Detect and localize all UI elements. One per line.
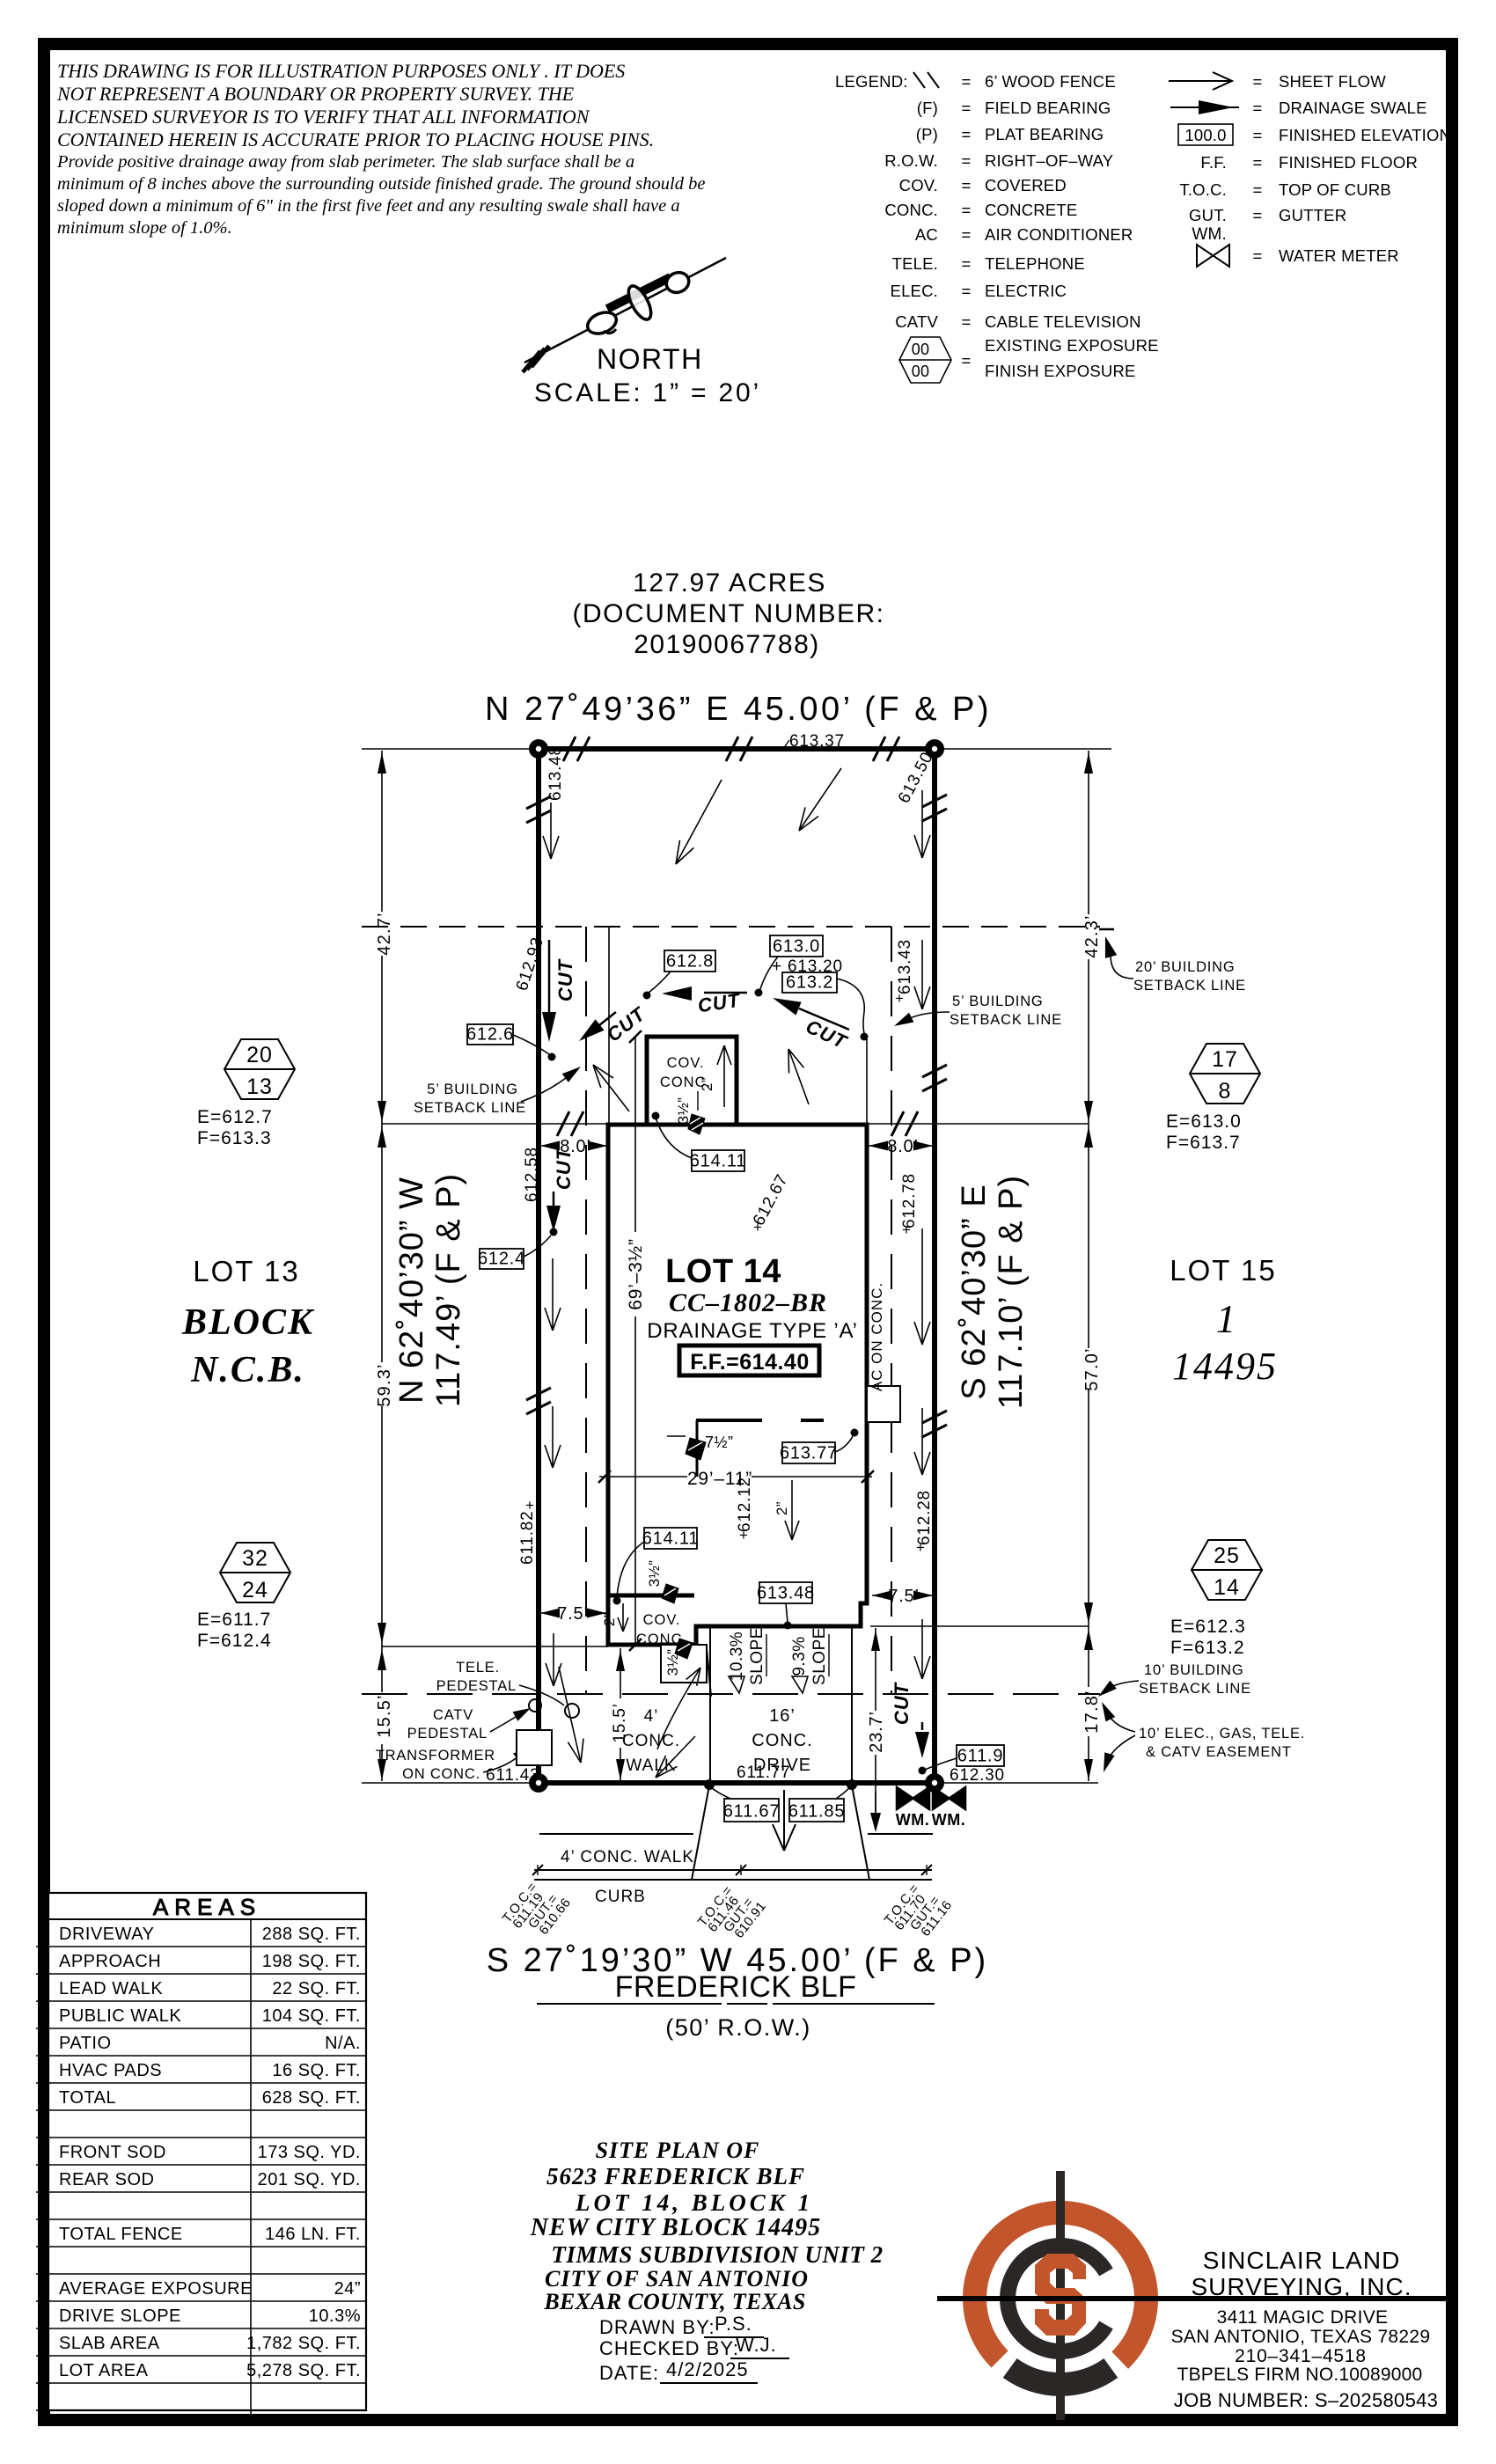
svg-text:RIGHT–OF–WAY: RIGHT–OF–WAY: [985, 151, 1113, 170]
svg-text:F=613.7: F=613.7: [1166, 1133, 1241, 1153]
svg-text:AREAS: AREAS: [153, 1894, 261, 1920]
svg-text:4’ CONC. WALK: 4’ CONC. WALK: [561, 1848, 694, 1866]
svg-text:(50’ R.O.W.): (50’ R.O.W.): [665, 2014, 811, 2041]
svg-text:3½”: 3½”: [675, 1097, 692, 1125]
svg-text:F=613.3: F=613.3: [197, 1128, 272, 1148]
svg-text:117.10’ (F & P): 117.10’ (F & P): [993, 1175, 1030, 1409]
svg-text:SETBACK LINE: SETBACK LINE: [1139, 1681, 1251, 1697]
svg-text:ELECTRIC: ELECTRIC: [985, 282, 1067, 300]
svg-text:+: +: [525, 1497, 535, 1514]
svg-text:S 62˚40’30” E: S 62˚40’30” E: [956, 1184, 993, 1399]
svg-text:CC–1802–BR: CC–1802–BR: [669, 1288, 827, 1317]
svg-text:7½”: 7½”: [705, 1434, 734, 1451]
svg-text:198 SQ. FT.: 198 SQ. FT.: [262, 1952, 361, 1971]
svg-text:8.0’: 8.0’: [560, 1137, 590, 1156]
svg-text:201 SQ. YD.: 201 SQ. YD.: [258, 2170, 361, 2189]
svg-text:=: =: [1252, 99, 1262, 117]
svg-text:+: +: [739, 1527, 749, 1544]
svg-text:LOT 14, BLOCK 1: LOT 14, BLOCK 1: [575, 2189, 813, 2216]
svg-text:173 SQ. YD.: 173 SQ. YD.: [258, 2143, 361, 2162]
svg-text:WM.: WM.: [1192, 225, 1227, 244]
svg-text:2”: 2”: [774, 1501, 790, 1515]
svg-text:AVERAGE EXPOSURE: AVERAGE EXPOSURE: [59, 2279, 253, 2299]
svg-text:25: 25: [1214, 1544, 1240, 1568]
svg-text:+: +: [916, 1539, 926, 1556]
svg-text:=: =: [961, 176, 971, 194]
svg-text:COV.: COV.: [899, 176, 938, 194]
svg-text:E=613.0: E=613.0: [1166, 1111, 1242, 1132]
svg-text:E=612.3: E=612.3: [1170, 1617, 1246, 1637]
svg-text:117.49’ (F & P): 117.49’ (F & P): [430, 1173, 467, 1407]
svg-text:SHEET FLOW: SHEET FLOW: [1279, 72, 1386, 91]
svg-text:+: +: [895, 990, 905, 1007]
svg-text:=: =: [1252, 126, 1262, 144]
svg-text:TELE.: TELE.: [892, 254, 938, 273]
svg-text:=: =: [961, 254, 971, 273]
svg-text:N 27˚49’36” E 45.00’ (F &: N 27˚49’36” E 45.00’ (F & P): [485, 691, 992, 728]
svg-text:13: 13: [246, 1074, 273, 1099]
svg-text:NOT REPRESENT A BOUNDARY OR PR: NOT REPRESENT A BOUNDARY OR PROPERTY SUR…: [56, 83, 575, 105]
svg-text:=: =: [961, 351, 971, 370]
svg-text:22 SQ. FT.: 22 SQ. FT.: [272, 1979, 361, 1998]
svg-text:DRIVEWAY: DRIVEWAY: [59, 1925, 154, 1944]
svg-text:WM.: WM.: [896, 1811, 929, 1829]
svg-text:DRAINAGE TYPE ’A’: DRAINAGE TYPE ’A’: [647, 1319, 857, 1343]
svg-text:minimum of 8 inches above the: minimum of 8 inches above the surroundin…: [57, 174, 705, 194]
svg-text:FINISH EXPOSURE: FINISH EXPOSURE: [985, 362, 1136, 380]
svg-text:=: =: [961, 201, 971, 219]
svg-text:(F): (F): [917, 99, 938, 117]
svg-text:7.5’: 7.5’: [888, 1587, 919, 1606]
svg-text:minimum slope of 1.0%.: minimum slope of 1.0%.: [57, 218, 232, 238]
svg-text:SETBACK LINE: SETBACK LINE: [950, 1012, 1062, 1028]
svg-text:=: =: [1252, 72, 1262, 91]
svg-text:WATER METER: WATER METER: [1279, 246, 1399, 265]
svg-text:10’ ELEC., GAS, TELE.: 10’ ELEC., GAS, TELE.: [1139, 1726, 1305, 1742]
svg-text:CHECKED BY:: CHECKED BY:: [599, 2337, 739, 2359]
svg-text:SINCLAIR LAND: SINCLAIR LAND: [1203, 2247, 1401, 2274]
svg-text:628 SQ. FT.: 628 SQ. FT.: [262, 2088, 361, 2108]
svg-text:CUT: CUT: [891, 1682, 913, 1725]
svg-text:613.43: 613.43: [896, 939, 914, 994]
svg-text:612.4: 612.4: [478, 1250, 525, 1269]
svg-text:AIR CONDITIONER: AIR CONDITIONER: [985, 225, 1133, 244]
svg-text:00: 00: [912, 363, 929, 380]
svg-text:Provide positive drainage away: Provide positive drainage away from slab…: [56, 152, 634, 172]
svg-text:=: =: [961, 312, 971, 331]
svg-text:=: =: [1252, 246, 1262, 265]
svg-text:=: =: [961, 151, 971, 170]
svg-text:SLOPE: SLOPE: [810, 1627, 829, 1685]
svg-text:SAN ANTONIO, TEXAS 78229: SAN ANTONIO, TEXAS 78229: [1171, 2327, 1431, 2347]
svg-text:CATV: CATV: [433, 1707, 473, 1723]
svg-text:613.37: 613.37: [789, 732, 845, 751]
svg-text:F=612.4: F=612.4: [197, 1631, 272, 1651]
svg-text:LICENSED SURVEYOR IS TO VERIFY: LICENSED SURVEYOR IS TO VERIFY THAT ALL …: [56, 106, 590, 128]
svg-text:TELEPHONE: TELEPHONE: [985, 254, 1085, 273]
svg-text:613.48: 613.48: [757, 1584, 815, 1603]
svg-text:PEDESTAL: PEDESTAL: [407, 1726, 488, 1742]
svg-text:=: =: [961, 225, 971, 244]
svg-text:LOT AREA: LOT AREA: [59, 2361, 149, 2380]
svg-text:9.3%: 9.3%: [790, 1636, 809, 1676]
svg-text:20: 20: [246, 1043, 273, 1067]
svg-text:612.8: 612.8: [666, 952, 714, 972]
svg-text:CONC.: CONC.: [752, 1731, 812, 1750]
svg-text:612.30: 612.30: [950, 1766, 1005, 1785]
svg-text:THIS DRAWING IS FOR ILLUSTRATI: THIS DRAWING IS FOR ILLUSTRATION PURPOSE…: [57, 60, 625, 82]
svg-text:611.85: 611.85: [788, 1802, 846, 1822]
svg-text:1,782 SQ. FT.: 1,782 SQ. FT.: [246, 2334, 361, 2353]
svg-text:CITY OF SAN ANTONIO: CITY OF SAN ANTONIO: [545, 2266, 809, 2292]
svg-text:16 SQ. FT.: 16 SQ. FT.: [272, 2061, 361, 2080]
svg-text:LOT 13: LOT 13: [193, 1255, 299, 1287]
svg-text:612.6: 612.6: [466, 1025, 514, 1045]
svg-text:TOP OF CURB: TOP OF CURB: [1279, 180, 1391, 199]
svg-text:SLAB AREA: SLAB AREA: [59, 2334, 160, 2353]
svg-text:15.5’: 15.5’: [611, 1703, 629, 1742]
svg-text:612.78: 612.78: [900, 1173, 919, 1228]
svg-text:TOTAL FENCE: TOTAL FENCE: [59, 2225, 183, 2244]
svg-text:FINISHED ELEVATION: FINISHED ELEVATION: [1279, 126, 1451, 144]
svg-text:=: =: [1252, 206, 1262, 224]
svg-text:NORTH: NORTH: [597, 343, 703, 375]
svg-text:2”: 2”: [699, 1077, 715, 1091]
svg-text:F.F.: F.F.: [1200, 153, 1227, 172]
svg-text:10.3%: 10.3%: [728, 1632, 746, 1681]
svg-text:AC ON CONC.: AC ON CONC.: [869, 1282, 885, 1391]
svg-text:F.F.=614.40: F.F.=614.40: [690, 1350, 809, 1375]
svg-text:00: 00: [912, 341, 929, 358]
svg-text:APPROACH: APPROACH: [59, 1952, 161, 1971]
svg-text:AC: AC: [915, 225, 938, 244]
svg-text:DATE:: DATE:: [599, 2362, 659, 2384]
svg-text:8.0’: 8.0’: [887, 1137, 918, 1156]
svg-text:SURVEYING, INC.: SURVEYING, INC.: [1192, 2273, 1412, 2300]
svg-text:ELEC.: ELEC.: [891, 282, 938, 300]
svg-text:TOTAL: TOTAL: [59, 2088, 116, 2108]
svg-text:5623 FREDERICK BLF: 5623 FREDERICK BLF: [546, 2163, 805, 2189]
svg-text:HVAC PADS: HVAC PADS: [59, 2061, 162, 2080]
svg-text:10.3%: 10.3%: [309, 2306, 361, 2326]
svg-text:CATV: CATV: [895, 312, 938, 331]
svg-text:TRANSFORMER: TRANSFORMER: [376, 1748, 495, 1764]
svg-text:=: =: [961, 125, 971, 143]
svg-text:20’ BUILDING: 20’ BUILDING: [1135, 959, 1236, 975]
svg-text:5’ BUILDING: 5’ BUILDING: [427, 1082, 518, 1097]
svg-text:17: 17: [1212, 1047, 1238, 1072]
svg-text:614.11: 614.11: [690, 1152, 747, 1171]
svg-text:BLOCK: BLOCK: [181, 1302, 315, 1343]
svg-text:E=611.7: E=611.7: [197, 1610, 271, 1630]
svg-text:613.2: 613.2: [786, 973, 833, 993]
svg-text:=: =: [961, 282, 971, 300]
svg-text:JOB NUMBER: S–202580543: JOB NUMBER: S–202580543: [1174, 2389, 1438, 2411]
svg-text:127.97 ACRES: 127.97 ACRES: [633, 568, 826, 598]
svg-text:CURB: CURB: [595, 1888, 646, 1906]
svg-text:4/2/2025: 4/2/2025: [666, 2358, 749, 2380]
svg-text:R.O.W.: R.O.W.: [884, 151, 938, 170]
svg-text:PATIO: PATIO: [59, 2034, 112, 2053]
svg-text:+: +: [753, 1219, 763, 1236]
svg-text:F=613.2: F=613.2: [1170, 1638, 1245, 1658]
svg-text:SITE PLAN OF: SITE PLAN OF: [596, 2138, 760, 2163]
svg-text:6’ WOOD FENCE: 6’ WOOD FENCE: [985, 72, 1116, 91]
svg-text:288 SQ. FT.: 288 SQ. FT.: [262, 1925, 361, 1944]
svg-text:WALK: WALK: [626, 1756, 676, 1775]
svg-text:PUBLIC WALK: PUBLIC WALK: [59, 2006, 181, 2026]
svg-text:CONC.: CONC.: [884, 201, 938, 219]
svg-text:611.9: 611.9: [957, 1747, 1004, 1766]
svg-text:20190067788): 20190067788): [634, 630, 820, 659]
svg-text:614.11: 614.11: [642, 1529, 700, 1549]
svg-text:NEW CITY BLOCK 14495: NEW CITY BLOCK 14495: [530, 2214, 821, 2241]
svg-text:TBPELS FIRM NO.10089000: TBPELS FIRM NO.10089000: [1177, 2365, 1423, 2385]
svg-text:5,278 SQ. FT.: 5,278 SQ. FT.: [246, 2361, 361, 2380]
svg-text:14495: 14495: [1172, 1345, 1278, 1388]
svg-text:CUT: CUT: [554, 958, 576, 1001]
svg-text:EXISTING EXPOSURE: EXISTING EXPOSURE: [985, 336, 1159, 355]
svg-text:8: 8: [1219, 1079, 1232, 1104]
svg-text:W.J.: W.J.: [736, 2334, 777, 2356]
svg-text:42.7’: 42.7’: [375, 912, 394, 955]
svg-text:GUT.: GUT.: [1189, 206, 1227, 224]
svg-text:=: =: [961, 72, 971, 91]
svg-text:10’ BUILDING: 10’ BUILDING: [1144, 1662, 1244, 1678]
svg-text:23.7’: 23.7’: [867, 1711, 886, 1752]
svg-text:613.77: 613.77: [780, 1444, 838, 1463]
svg-text:14: 14: [1214, 1575, 1240, 1600]
svg-text:2”: 2”: [601, 1612, 618, 1626]
svg-text:29’–11”: 29’–11”: [687, 1469, 752, 1489]
svg-text:3½”: 3½”: [664, 1649, 681, 1676]
svg-text:CONC.: CONC.: [622, 1732, 680, 1750]
svg-text:32: 32: [242, 1546, 268, 1571]
svg-text:CONTAINED HEREIN IS ACCURATE P: CONTAINED HEREIN IS ACCURATE PRIOR TO PL…: [57, 128, 654, 150]
svg-text:104 SQ. FT.: 104 SQ. FT.: [262, 2006, 361, 2026]
svg-text:E=612.7: E=612.7: [197, 1107, 273, 1127]
svg-text:=: =: [1252, 153, 1262, 172]
svg-text:P.S.: P.S.: [715, 2313, 752, 2335]
svg-text:57.0’: 57.0’: [1082, 1347, 1102, 1390]
svg-text:N.C.B.: N.C.B.: [190, 1350, 305, 1390]
svg-text:sloped down a minimum of 6" in: sloped down a minimum of 6" in the first…: [57, 196, 680, 216]
svg-text:SCALE: 1” = 20’: SCALE: 1” = 20’: [534, 378, 761, 407]
svg-text:COV.: COV.: [667, 1055, 705, 1071]
svg-text:DRAINAGE SWALE: DRAINAGE SWALE: [1279, 99, 1427, 117]
svg-text:& CATV EASEMENT: & CATV EASEMENT: [1146, 1744, 1292, 1760]
svg-text:24”: 24”: [334, 2279, 361, 2299]
svg-text:7.5’: 7.5’: [557, 1604, 588, 1624]
svg-text:N/A.: N/A.: [325, 2034, 361, 2053]
svg-text:146 LN. FT.: 146 LN. FT.: [265, 2225, 361, 2244]
svg-text:PEDESTAL: PEDESTAL: [436, 1678, 517, 1694]
svg-text:BEXAR COUNTY, TEXAS: BEXAR COUNTY, TEXAS: [543, 2289, 805, 2314]
svg-text:FRONT SOD: FRONT SOD: [59, 2143, 166, 2162]
svg-text:611.77: 611.77: [737, 1764, 791, 1782]
svg-text:N 62˚40’30” W: N 62˚40’30” W: [393, 1177, 430, 1404]
svg-text:CONCRETE: CONCRETE: [985, 201, 1077, 219]
svg-text:SETBACK LINE: SETBACK LINE: [1133, 978, 1246, 994]
svg-text:=: =: [1252, 180, 1262, 199]
svg-text:WM.: WM.: [932, 1811, 965, 1829]
svg-text:T.O.C.: T.O.C.: [1179, 180, 1227, 199]
svg-text:FREDERICK BLF: FREDERICK BLF: [615, 1970, 857, 2004]
svg-text:613.0: 613.0: [773, 937, 820, 957]
svg-text:FINISHED FLOOR: FINISHED FLOOR: [1279, 153, 1418, 172]
svg-text:(DOCUMENT NUMBER:: (DOCUMENT NUMBER:: [573, 599, 885, 628]
svg-text:1: 1: [1216, 1297, 1238, 1341]
svg-text:COVERED: COVERED: [985, 176, 1067, 194]
svg-text:COV.: COV.: [643, 1612, 681, 1628]
svg-text:FIELD BEARING: FIELD BEARING: [985, 99, 1111, 117]
svg-text:3½”: 3½”: [646, 1560, 663, 1588]
svg-text:612.28: 612.28: [915, 1490, 934, 1545]
svg-text:LOT 15: LOT 15: [1170, 1254, 1276, 1287]
svg-text:4’: 4’: [644, 1707, 659, 1726]
svg-text:GUTTER: GUTTER: [1279, 206, 1346, 224]
svg-text:=: =: [961, 99, 971, 117]
svg-text:LEAD WALK: LEAD WALK: [59, 1979, 163, 1998]
svg-text:SETBACK LINE: SETBACK LINE: [414, 1100, 526, 1116]
svg-text:24: 24: [242, 1578, 268, 1602]
svg-text:210–341–4518: 210–341–4518: [1235, 2346, 1367, 2366]
svg-text:15.5’: 15.5’: [375, 1694, 394, 1737]
svg-text:CABLE TELEVISION: CABLE TELEVISION: [985, 312, 1141, 331]
svg-text:REAR SOD: REAR SOD: [59, 2170, 154, 2189]
svg-text:TELE.: TELE.: [456, 1660, 500, 1676]
svg-text:TIMMS SUBDIVISION UNIT 2: TIMMS SUBDIVISION UNIT 2: [551, 2241, 883, 2268]
svg-text:16’: 16’: [769, 1706, 796, 1726]
svg-text:LOT 14: LOT 14: [665, 1253, 781, 1290]
svg-text:(P): (P): [916, 125, 938, 143]
svg-text:DRIVE SLOPE: DRIVE SLOPE: [59, 2306, 181, 2326]
svg-text:DRAWN BY:: DRAWN BY:: [599, 2316, 715, 2338]
svg-text:3411 MAGIC DRIVE: 3411 MAGIC DRIVE: [1217, 2307, 1389, 2328]
svg-text:611.67: 611.67: [723, 1802, 781, 1822]
svg-text:+: +: [902, 1221, 912, 1238]
svg-text:612.58: 612.58: [523, 1147, 541, 1202]
svg-text:611.82: 611.82: [518, 1510, 537, 1565]
svg-text:ON CONC.: ON CONC.: [402, 1766, 480, 1782]
svg-text:17.8’: 17.8’: [1082, 1690, 1102, 1733]
svg-text:PLAT BEARING: PLAT BEARING: [985, 125, 1104, 143]
svg-text:100.0: 100.0: [1184, 126, 1226, 144]
svg-text:LEGEND:: LEGEND:: [835, 72, 908, 91]
svg-text:69’–3½”: 69’–3½”: [626, 1238, 646, 1310]
svg-text:SLOPE: SLOPE: [748, 1627, 766, 1685]
svg-text:42.3’: 42.3’: [1082, 914, 1102, 957]
svg-text:5’ BUILDING: 5’ BUILDING: [952, 994, 1044, 1009]
svg-text:613.48: 613.48: [546, 745, 565, 801]
svg-text:59.3’: 59.3’: [375, 1363, 394, 1406]
